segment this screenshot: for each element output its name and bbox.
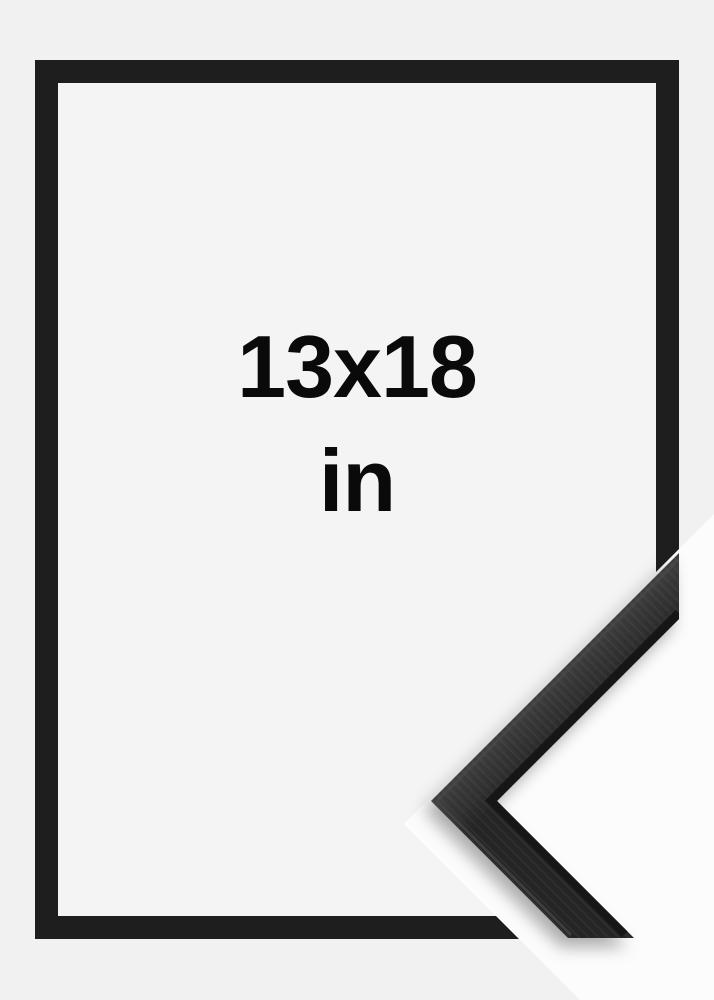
frame-product-image: 13x18 in xyxy=(0,0,714,1000)
unit-label: in xyxy=(0,424,714,538)
size-caption: 13x18 in xyxy=(0,310,714,538)
size-label: 13x18 xyxy=(0,310,714,424)
